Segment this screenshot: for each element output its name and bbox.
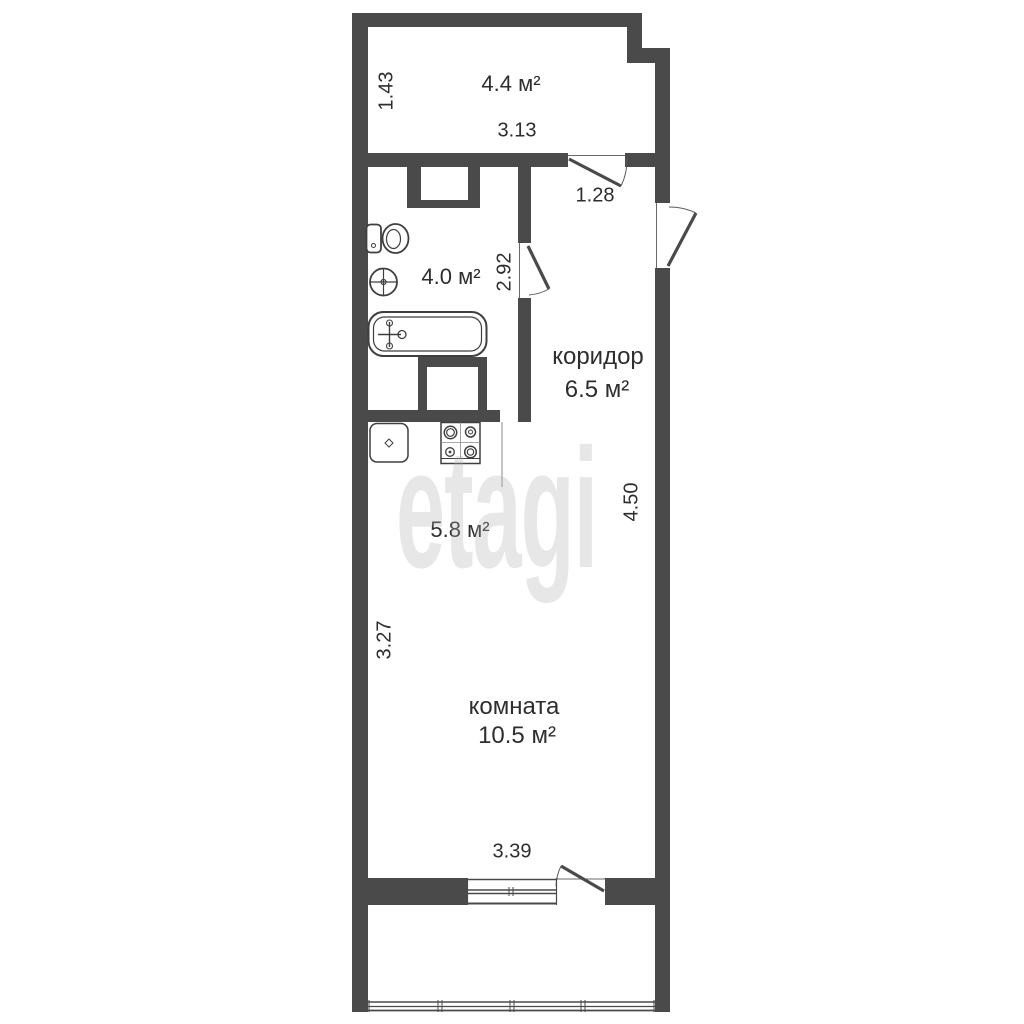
- wash-basin-icon: [370, 269, 397, 296]
- kitchen-sink-icon: [370, 424, 408, 463]
- dim-balcony-depth: 1.43: [376, 72, 399, 111]
- dim-room-width: 3.39: [493, 841, 532, 864]
- floor-plan: 4.4 м² 1.43 3.13 1.28 4.0 м² 2.92 коридо…: [0, 0, 1024, 1024]
- door-arc-balcony-top: [621, 159, 627, 186]
- door-leaf-balcony-top: [569, 159, 621, 186]
- balcony-glazing-icon: [368, 1000, 656, 1012]
- dim-corridor-length: 4.50: [621, 483, 644, 522]
- door-arc-entrance: [669, 207, 696, 213]
- door-leaf-bathroom: [528, 246, 549, 289]
- corridor-area-label: 6.5 м²: [565, 376, 630, 404]
- door-arc-bathroom: [529, 289, 549, 295]
- bathtub-icon: [369, 312, 487, 356]
- stove-icon: [441, 423, 480, 464]
- door-leaf-entrance: [668, 213, 696, 266]
- dim-bathroom-height: 2.92: [494, 253, 517, 292]
- room-name-label: комната: [469, 693, 560, 721]
- room-window-icon: [467, 878, 557, 905]
- corridor-name-label: коридор: [552, 343, 644, 371]
- bathroom-area-label: 4.0 м²: [421, 264, 480, 290]
- balcony-top-area-label: 4.4 м²: [481, 71, 540, 97]
- dim-balcony-door: 1.28: [576, 185, 615, 208]
- dim-balcony-width: 3.13: [498, 120, 537, 143]
- toilet-icon: [367, 224, 409, 253]
- plan-details: [0, 0, 1024, 1024]
- dim-kitchen-room-height: 3.27: [374, 621, 397, 660]
- kitchen-area-label: 5.8 м²: [430, 517, 489, 543]
- room-area-label: 10.5 м²: [478, 722, 556, 750]
